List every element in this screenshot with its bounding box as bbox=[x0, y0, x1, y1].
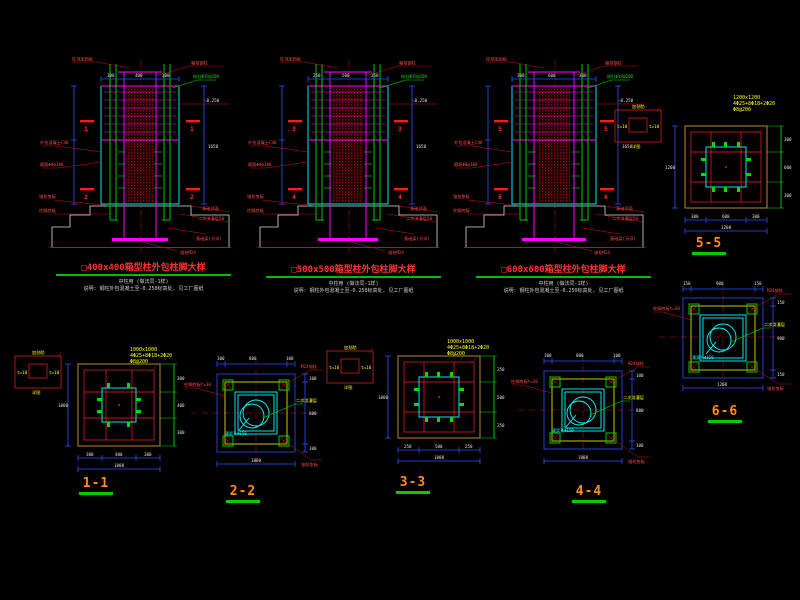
dimension-bottom: 1200 bbox=[683, 382, 763, 391]
svg-text:锚栓垫板: 锚栓垫板 bbox=[39, 193, 57, 200]
svg-text:t=10: t=10 bbox=[329, 365, 340, 370]
svg-text:3: 3 bbox=[398, 125, 402, 133]
svg-text:锚栓垫板: 锚栓垫板 bbox=[453, 193, 471, 200]
title-subtitle: 中柱用 (做法同-1样) 说明: 钢柱外包混凝土至-0.250标高处, 见工厂图… bbox=[56, 279, 231, 293]
svg-text:二次浇灌层50: 二次浇灌层50 bbox=[198, 215, 224, 222]
svg-text:二次浇灌层: 二次浇灌层 bbox=[296, 397, 317, 404]
svg-text:柱脚底板: 柱脚底板 bbox=[247, 207, 265, 214]
svg-text:箍筋Φ8@100: 箍筋Φ8@100 bbox=[454, 161, 478, 168]
svg-text:t=10: t=10 bbox=[17, 370, 28, 375]
svg-text:基础梁(另详): 基础梁(另详) bbox=[404, 235, 430, 242]
svg-text:5: 5 bbox=[498, 125, 502, 133]
svg-text:1000: 1000 bbox=[378, 395, 389, 400]
svg-text:150: 150 bbox=[777, 372, 785, 377]
svg-text:M24锚栓: M24锚栓 bbox=[301, 363, 318, 370]
svg-text:1650: 1650 bbox=[208, 144, 219, 149]
svg-text:300: 300 bbox=[107, 73, 115, 78]
elevation-view-d600: 300 600 300 1650 5 5 6 6 bbox=[452, 56, 657, 256]
svg-text:二次浇灌层50: 二次浇灌层50 bbox=[406, 215, 432, 222]
break-mark bbox=[150, 365, 157, 372]
section-view-1-1: 300 400 300 1000 300 400 300 1000 bbox=[46, 358, 191, 476]
svg-text:300: 300 bbox=[691, 214, 699, 219]
svg-text:灌浆孔Φ150: 灌浆孔Φ150 bbox=[692, 354, 714, 360]
svg-text:柱脚底板t=30: 柱脚底板t=30 bbox=[511, 378, 538, 385]
svg-text:250: 250 bbox=[497, 423, 505, 428]
section-title-5-5: 5-5 bbox=[686, 236, 732, 255]
svg-text:100: 100 bbox=[309, 446, 317, 451]
section-title-2-2: 2-2 bbox=[222, 484, 264, 503]
svg-text:900: 900 bbox=[777, 336, 785, 341]
svg-text:6: 6 bbox=[498, 193, 502, 201]
svg-text:1000: 1000 bbox=[58, 403, 69, 408]
svg-text:锚栓垫板: 锚栓垫板 bbox=[247, 193, 265, 200]
svg-text:栓钉Φ19@200: 栓钉Φ19@200 bbox=[607, 73, 634, 80]
svg-text:基础顶面: 基础顶面 bbox=[202, 205, 219, 212]
drawing-title-d600: □600x600箱型柱外包柱脚大样 中柱用 (做法同-1样) 说明: 钢柱外包混… bbox=[476, 262, 651, 295]
dimension-left-blue: 1000 bbox=[378, 356, 391, 438]
title-subtitle: 中柱用 (做法同-1样) 说明: 钢柱外包混凝土至-0.250标高处, 见工厂图… bbox=[266, 281, 441, 295]
base-plate bbox=[318, 238, 378, 241]
svg-text:加劲肋: 加劲肋 bbox=[632, 103, 645, 110]
svg-text:250: 250 bbox=[313, 73, 321, 78]
svg-text:800: 800 bbox=[309, 411, 317, 416]
svg-text:300: 300 bbox=[752, 214, 760, 219]
svg-text:150: 150 bbox=[777, 300, 785, 305]
svg-text:5: 5 bbox=[604, 125, 608, 133]
svg-text:600: 600 bbox=[548, 73, 556, 78]
svg-text:4: 4 bbox=[292, 193, 296, 201]
svg-text:锚栓M24: 锚栓M24 bbox=[594, 249, 610, 256]
drawing-title-d500: □500x500箱型柱外包柱脚大样 中柱用 (做法同-1样) 说明: 钢柱外包混… bbox=[266, 262, 441, 295]
svg-text:锚栓垫板: 锚栓垫板 bbox=[628, 458, 646, 465]
section-title-6-6: 6-6 bbox=[702, 404, 748, 423]
svg-text:1200: 1200 bbox=[721, 225, 732, 230]
svg-text:300: 300 bbox=[86, 452, 94, 457]
centerlines bbox=[518, 355, 648, 465]
svg-text:二次浇灌层: 二次浇灌层 bbox=[623, 394, 644, 401]
svg-text:t=10: t=10 bbox=[617, 124, 628, 129]
svg-text:100: 100 bbox=[309, 376, 317, 381]
svg-text:300: 300 bbox=[784, 137, 792, 142]
svg-text:800: 800 bbox=[636, 408, 644, 413]
dimension-right: 150 900 150 bbox=[770, 298, 785, 378]
svg-text:详图: 详图 bbox=[32, 389, 40, 396]
base-plate bbox=[522, 238, 586, 241]
svg-text:柱脚底板: 柱脚底板 bbox=[39, 207, 57, 214]
svg-text:2: 2 bbox=[84, 193, 88, 201]
svg-text:基础梁(另详): 基础梁(另详) bbox=[196, 235, 222, 242]
svg-text:400: 400 bbox=[135, 73, 143, 78]
svg-text:1000: 1000 bbox=[578, 455, 589, 460]
center-point bbox=[118, 404, 120, 406]
svg-text:柱脚底板t=30: 柱脚底板t=30 bbox=[184, 381, 211, 388]
svg-text:150: 150 bbox=[683, 281, 691, 286]
rebar-note-3-3: 1000x1000 4Φ25+8Φ18+2Φ20 Φ8@200 bbox=[447, 339, 489, 357]
svg-text:600: 600 bbox=[722, 214, 730, 219]
break-mark bbox=[757, 127, 764, 134]
svg-text:150: 150 bbox=[754, 281, 762, 286]
dimension-bottom: 300 600 300 1200 bbox=[685, 214, 767, 234]
svg-text:1200: 1200 bbox=[717, 382, 728, 387]
section-view-4-4: 100 800 100 100 800 100 1000 二次浇灌层 bbox=[510, 353, 655, 479]
title-text: □600x600箱型柱外包柱脚大样 bbox=[476, 262, 651, 278]
svg-text:M24锚栓: M24锚栓 bbox=[628, 360, 645, 367]
base-plate bbox=[691, 306, 755, 370]
svg-text:柱顶加劲板: 柱顶加劲板 bbox=[486, 56, 508, 63]
svg-text:800: 800 bbox=[249, 356, 257, 361]
dimension-top: 300 600 300 bbox=[512, 73, 596, 82]
svg-text:锚栓垫板: 锚栓垫板 bbox=[767, 385, 785, 392]
elevation-view-d500: 250 500 250 1650 3 3 4 4 bbox=[246, 56, 451, 256]
svg-text:1: 1 bbox=[190, 125, 194, 133]
dimension-bottom: 250 500 250 1000 bbox=[398, 444, 480, 464]
svg-text:箱型钢柱: 箱型钢柱 bbox=[399, 60, 417, 67]
svg-text:600: 600 bbox=[784, 165, 792, 170]
svg-text:100: 100 bbox=[217, 356, 225, 361]
svg-text:栓钉Φ19@200: 栓钉Φ19@200 bbox=[401, 73, 428, 80]
svg-text:二次浇灌层: 二次浇灌层 bbox=[764, 321, 785, 328]
svg-text:锚栓垫板: 锚栓垫板 bbox=[301, 461, 319, 468]
svg-text:300: 300 bbox=[517, 73, 525, 78]
svg-text:二次浇灌层50: 二次浇灌层50 bbox=[612, 215, 638, 222]
svg-text:250: 250 bbox=[465, 444, 473, 449]
svg-text:加劲肋: 加劲肋 bbox=[344, 344, 357, 351]
svg-text:3: 3 bbox=[292, 125, 296, 133]
svg-text:100: 100 bbox=[544, 353, 552, 358]
svg-text:500: 500 bbox=[342, 73, 350, 78]
dimension-right-green: 300 600 300 bbox=[767, 126, 792, 208]
section-view-6-6: 150 900 150 150 900 150 1200 二次浇灌层 bbox=[653, 282, 793, 404]
svg-text:-0.250: -0.250 bbox=[204, 98, 220, 103]
svg-text:300: 300 bbox=[144, 452, 152, 457]
svg-text:100: 100 bbox=[636, 373, 644, 378]
concrete-hatch bbox=[333, 88, 363, 202]
svg-text:250: 250 bbox=[371, 73, 379, 78]
dimension-top: 300 400 300 bbox=[101, 73, 179, 82]
svg-text:1: 1 bbox=[84, 125, 88, 133]
svg-text:箱型钢柱: 箱型钢柱 bbox=[605, 60, 623, 67]
svg-text:详图: 详图 bbox=[632, 143, 640, 150]
svg-text:箍筋Φ8@100: 箍筋Φ8@100 bbox=[248, 161, 272, 168]
section-title-3-3: 3-3 bbox=[392, 475, 434, 494]
leader-annotations: 二次浇灌层 M24锚栓 锚栓垫板 柱脚底板t=30 灌浆孔Φ150 bbox=[653, 287, 791, 392]
svg-text:100: 100 bbox=[636, 443, 644, 448]
centerlines bbox=[659, 284, 787, 390]
centerlines bbox=[191, 358, 321, 468]
section-title-4-4: 4-4 bbox=[568, 484, 610, 503]
svg-text:箍筋Φ8@100: 箍筋Φ8@100 bbox=[40, 161, 64, 168]
svg-text:400: 400 bbox=[115, 452, 123, 457]
svg-text:灌浆孔Φ150: 灌浆孔Φ150 bbox=[552, 427, 574, 433]
dimension-left-blue: 1200 bbox=[665, 126, 678, 208]
svg-text:M24锚栓: M24锚栓 bbox=[767, 287, 784, 294]
svg-text:柱顶加劲板: 柱顶加劲板 bbox=[280, 56, 302, 63]
rebar-note-1-1: 1000x1000 4Φ25+8Φ18+2Φ20 Φ8@200 bbox=[130, 347, 172, 365]
svg-text:1000: 1000 bbox=[434, 455, 445, 460]
svg-text:锚栓M24: 锚栓M24 bbox=[180, 249, 196, 256]
dimension-top: 250 500 250 bbox=[308, 73, 388, 82]
svg-text:100: 100 bbox=[286, 356, 294, 361]
svg-text:800: 800 bbox=[576, 353, 584, 358]
svg-text:基础梁(另详): 基础梁(另详) bbox=[610, 235, 636, 242]
svg-text:2: 2 bbox=[190, 193, 194, 201]
svg-text:栓钉Φ19@200: 栓钉Φ19@200 bbox=[193, 73, 220, 80]
title-text: □500x500箱型柱外包柱脚大样 bbox=[266, 262, 441, 278]
svg-text:900: 900 bbox=[716, 281, 724, 286]
base-plate bbox=[112, 238, 168, 241]
svg-text:详图: 详图 bbox=[344, 384, 352, 391]
svg-text:1200: 1200 bbox=[665, 165, 676, 170]
dimension-left-blue: 1000 bbox=[58, 364, 71, 446]
svg-text:柱脚底板t=30: 柱脚底板t=30 bbox=[653, 305, 680, 312]
dimension-right-green: 250 500 250 bbox=[480, 356, 505, 438]
svg-text:300: 300 bbox=[784, 193, 792, 198]
dimension-bottom: 300 400 300 1000 bbox=[78, 452, 160, 472]
break-mark bbox=[470, 357, 477, 364]
svg-text:箱型钢柱: 箱型钢柱 bbox=[191, 60, 209, 67]
svg-text:100: 100 bbox=[613, 353, 621, 358]
title-text: □400x400箱型柱外包柱脚大样 bbox=[56, 260, 231, 276]
elevation-view-d400: 300 400 300 1650 1 1 2 2 bbox=[38, 56, 243, 256]
section-view-3-3: 250 500 250 1000 250 500 250 1000 bbox=[366, 350, 511, 468]
title-subtitle: 中柱用 (做法同-1样) 说明: 钢柱外包混凝土至-0.250标高处, 见工厂图… bbox=[476, 281, 651, 295]
svg-text:250: 250 bbox=[404, 444, 412, 449]
cad-canvas[interactable]: 300 400 300 1650 1 1 2 2 bbox=[0, 0, 800, 600]
section-view-2-2: 100 800 100 100 800 100 1000 二次浇灌层 bbox=[183, 356, 328, 482]
dimension-right-green: 300 400 300 bbox=[160, 364, 185, 446]
svg-text:-0.250: -0.250 bbox=[412, 98, 428, 103]
center-point bbox=[725, 166, 727, 168]
svg-text:柱顶加劲板: 柱顶加劲板 bbox=[72, 56, 94, 63]
svg-text:加劲肋: 加劲肋 bbox=[32, 349, 45, 356]
center-point bbox=[438, 396, 440, 398]
drawing-title-d400: □400x400箱型柱外包柱脚大样 中柱用 (做法同-1样) 说明: 钢柱外包混… bbox=[56, 260, 231, 293]
section-title-1-1: 1-1 bbox=[75, 476, 117, 495]
svg-text:柱脚底板: 柱脚底板 bbox=[453, 207, 471, 214]
rebar-note-5-5: 1200x1200 4Φ25+8Φ18+2Φ20 Φ8@200 bbox=[733, 95, 775, 113]
svg-text:6: 6 bbox=[604, 193, 608, 201]
svg-text:外包混凝土C40: 外包混凝土C40 bbox=[248, 139, 277, 146]
svg-text:500: 500 bbox=[435, 444, 443, 449]
svg-text:灌浆孔Φ150: 灌浆孔Φ150 bbox=[225, 430, 247, 436]
svg-text:1000: 1000 bbox=[251, 458, 262, 463]
svg-text:500: 500 bbox=[497, 395, 505, 400]
section-view-5-5: 300 600 300 1200 300 600 300 1200 bbox=[653, 120, 798, 238]
svg-text:250: 250 bbox=[497, 367, 505, 372]
svg-text:1000: 1000 bbox=[114, 463, 125, 468]
svg-text:锚栓M24: 锚栓M24 bbox=[388, 249, 404, 256]
svg-text:1650: 1650 bbox=[416, 144, 427, 149]
svg-text:外包混凝土C40: 外包混凝土C40 bbox=[454, 139, 483, 146]
concrete-hatch bbox=[126, 88, 154, 202]
svg-text:4: 4 bbox=[398, 193, 402, 201]
svg-text:外包混凝土C40: 外包混凝土C40 bbox=[40, 139, 69, 146]
concrete-hatch bbox=[538, 88, 570, 202]
svg-text:基础顶面: 基础顶面 bbox=[616, 205, 633, 212]
svg-text:基础顶面: 基础顶面 bbox=[410, 205, 427, 212]
